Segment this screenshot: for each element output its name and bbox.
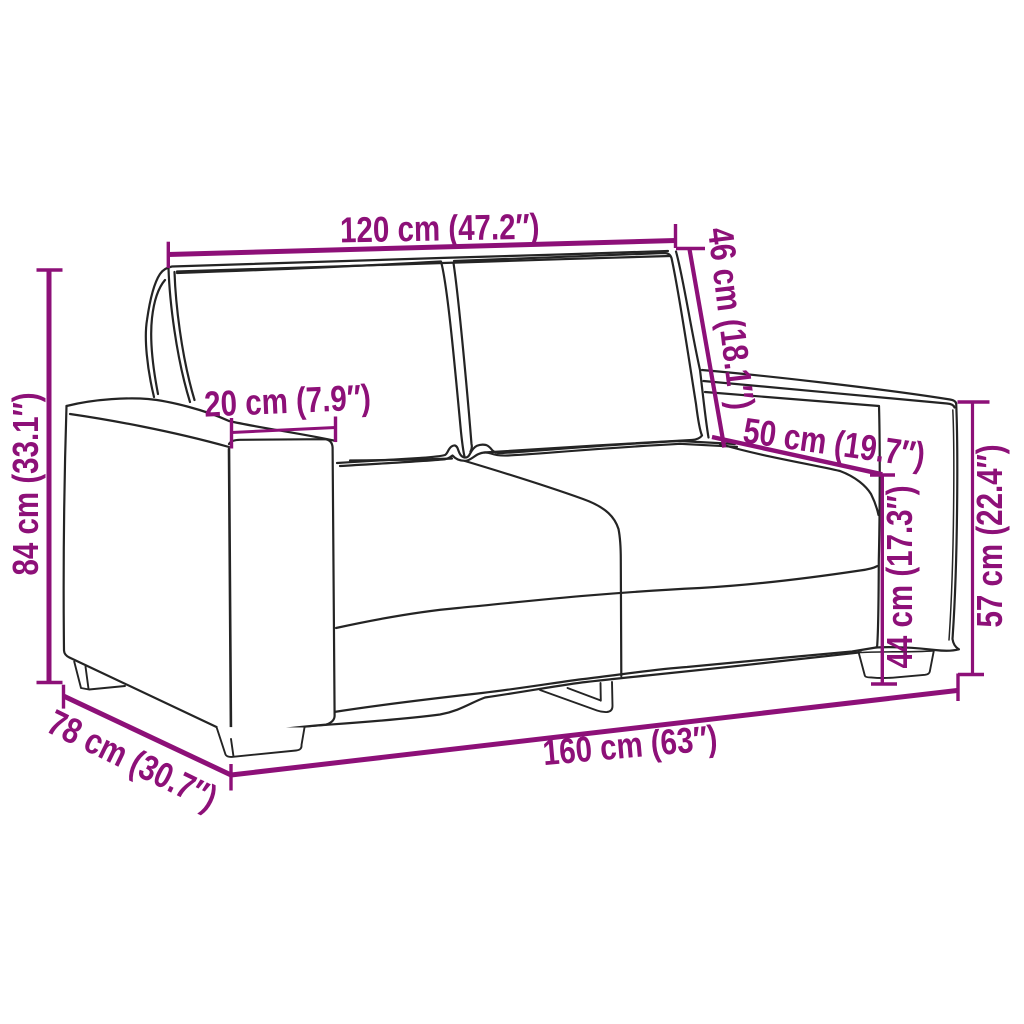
- svg-text:20 cm (7.9″): 20 cm (7.9″): [203, 377, 371, 425]
- svg-text:120 cm (47.2″): 120 cm (47.2″): [340, 206, 540, 250]
- svg-text:44 cm (17.3″): 44 cm (17.3″): [879, 485, 919, 668]
- svg-text:84 cm (33.1″): 84 cm (33.1″): [5, 392, 45, 575]
- svg-text:57 cm (22.4″): 57 cm (22.4″): [969, 444, 1009, 627]
